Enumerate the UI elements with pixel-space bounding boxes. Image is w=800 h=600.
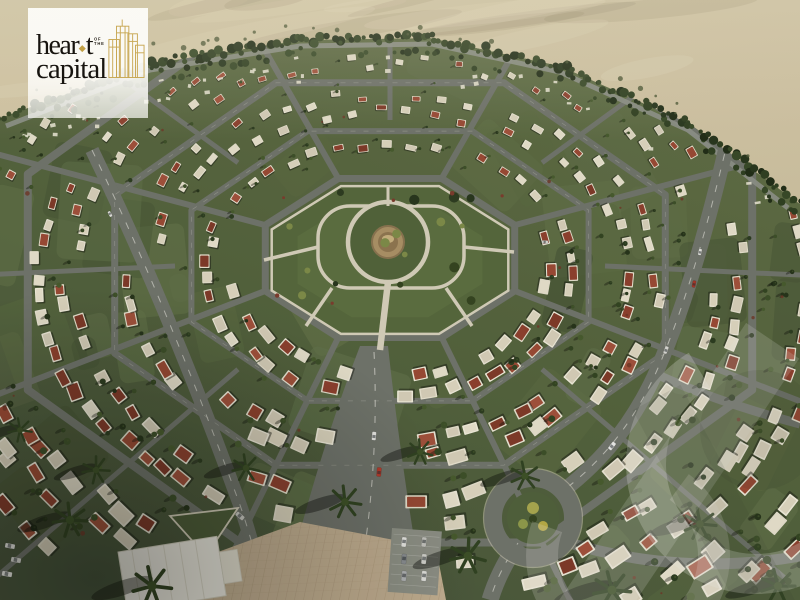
brand-text-of-the: OF THE bbox=[94, 37, 105, 47]
buildings-outline-icon bbox=[107, 19, 145, 79]
real-estate-listing-image: heart OF THE capital bbox=[0, 0, 800, 600]
brand-word-capital: capital bbox=[36, 55, 106, 84]
gold-diamond-icon bbox=[79, 45, 85, 51]
brand-logo: heart OF THE capital bbox=[28, 8, 148, 118]
